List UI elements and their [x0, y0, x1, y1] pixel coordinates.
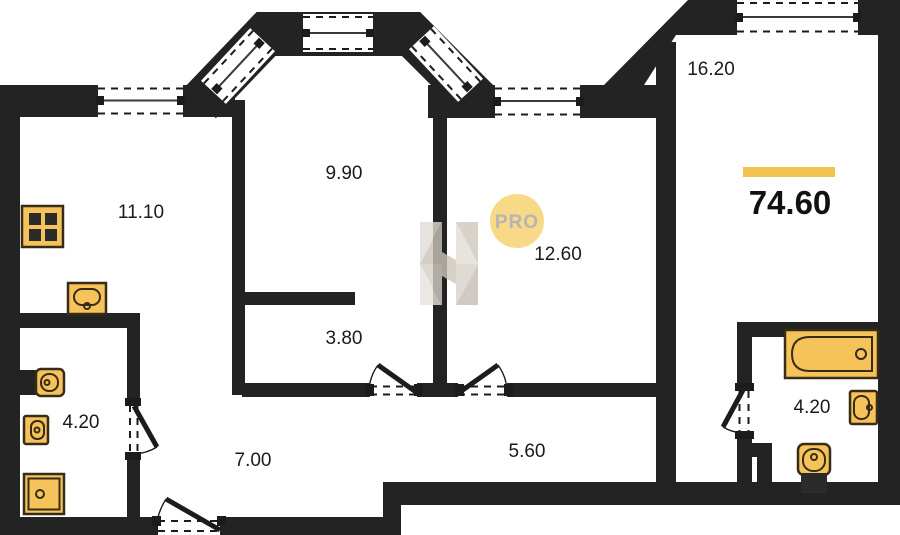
kitchen-sink-icon [68, 283, 106, 314]
floorplan-canvas: PRO 11.10 9.90 16.20 12.60 3.80 4.20 7.0… [0, 0, 900, 535]
window-room-12 [493, 85, 584, 118]
wall-kitchen-right [232, 100, 245, 395]
wall-corridor-top-b [417, 383, 458, 397]
wall-separator-bedroom [656, 42, 676, 490]
washbasin-right-icon [850, 391, 877, 424]
wall-left-exterior [0, 85, 20, 535]
toilet-left-icon [36, 369, 64, 396]
door-bath-left [125, 398, 157, 460]
wall-bath-left-right-a [127, 313, 140, 405]
door-closet [365, 365, 423, 396]
total-area-accent-bar [743, 167, 835, 177]
room-label-corridor: 5.60 [509, 441, 546, 462]
wall-shaft-a [752, 443, 772, 457]
shower-tray-icon [24, 474, 64, 514]
window-kitchen [96, 85, 185, 117]
wall-kitchen-top-a [0, 85, 98, 117]
washbasin-left-icon [24, 416, 48, 444]
window-bedroom [735, 0, 861, 35]
wall-right-exterior [878, 0, 900, 505]
stove-icon [22, 206, 63, 247]
room-label-closet: 3.80 [326, 328, 363, 349]
h-logo [420, 222, 478, 305]
toilet-right-icon [798, 444, 830, 493]
wall-bath-right-left-a [737, 337, 752, 383]
pro-badge-text: PRO [495, 212, 539, 233]
wall-corridor-top-a [242, 383, 370, 397]
door-entrance [152, 499, 226, 531]
door-bath-right [723, 383, 754, 439]
room-label-hallway: 7.00 [235, 450, 272, 471]
room-label-room: 12.60 [534, 244, 582, 265]
pro-badge: PRO [490, 194, 544, 248]
wall-closet-stub [242, 292, 355, 305]
floorplan-svg: PRO 11.10 9.90 16.20 12.60 3.80 4.20 7.0… [0, 0, 900, 535]
room-label-bathroom-right: 4.20 [794, 397, 831, 418]
wall-shaft-b [757, 457, 772, 490]
room-label-living-room: 9.90 [326, 163, 363, 184]
wall-corridor-top-c [507, 383, 658, 397]
bathtub-icon [785, 330, 878, 378]
room-label-bathroom-left: 4.20 [63, 412, 100, 433]
wall-top-right-corner [858, 0, 900, 35]
door-room-12 [455, 365, 513, 396]
wall-bath-left-right-b [127, 453, 140, 522]
window-bay-center [302, 14, 374, 52]
wall-toilet-duct [20, 370, 36, 395]
total-area-value: 74.60 [749, 184, 832, 221]
wall-bath-right-left-b [737, 439, 752, 490]
total-area: 74.60 [743, 167, 835, 221]
room-label-bedroom: 16.20 [687, 59, 735, 80]
room-label-kitchen: 11.10 [118, 202, 164, 223]
wall-mid-b [580, 85, 662, 118]
wall-bottom-left-b [220, 517, 401, 535]
